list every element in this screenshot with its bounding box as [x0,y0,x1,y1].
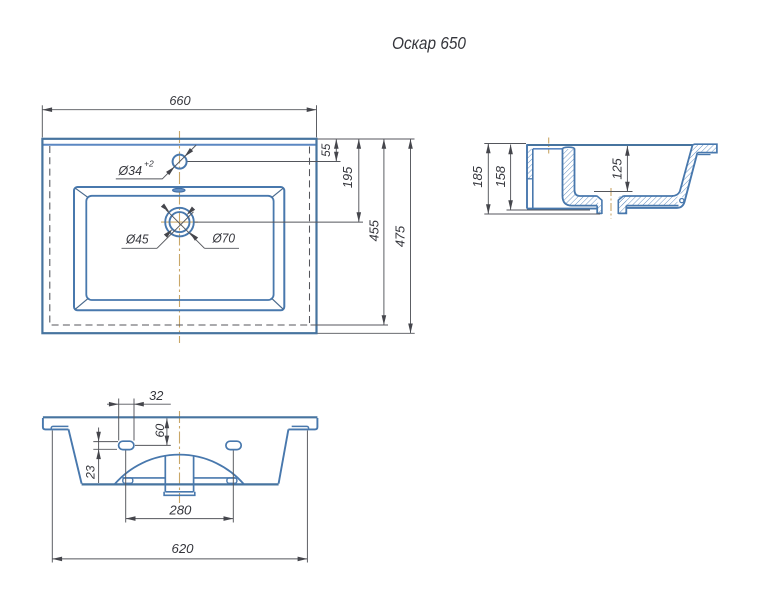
svg-text:23: 23 [83,465,97,480]
svg-text:185: 185 [470,165,485,187]
svg-text:660: 660 [169,93,191,108]
svg-text:55: 55 [319,143,333,157]
svg-text:Ø34: Ø34 [118,163,142,178]
svg-text:475: 475 [393,225,408,247]
svg-text:+2: +2 [144,159,154,169]
svg-text:620: 620 [171,541,194,556]
svg-text:Оскар 650: Оскар 650 [392,33,466,53]
svg-text:455: 455 [366,219,381,241]
svg-text:280: 280 [168,503,192,518]
svg-text:Ø70: Ø70 [212,231,236,246]
svg-text:32: 32 [149,388,163,403]
svg-text:60: 60 [153,424,167,438]
svg-text:195: 195 [340,166,355,188]
svg-text:158: 158 [493,165,508,187]
svg-text:125: 125 [610,157,625,179]
svg-text:Ø45: Ø45 [125,232,149,247]
